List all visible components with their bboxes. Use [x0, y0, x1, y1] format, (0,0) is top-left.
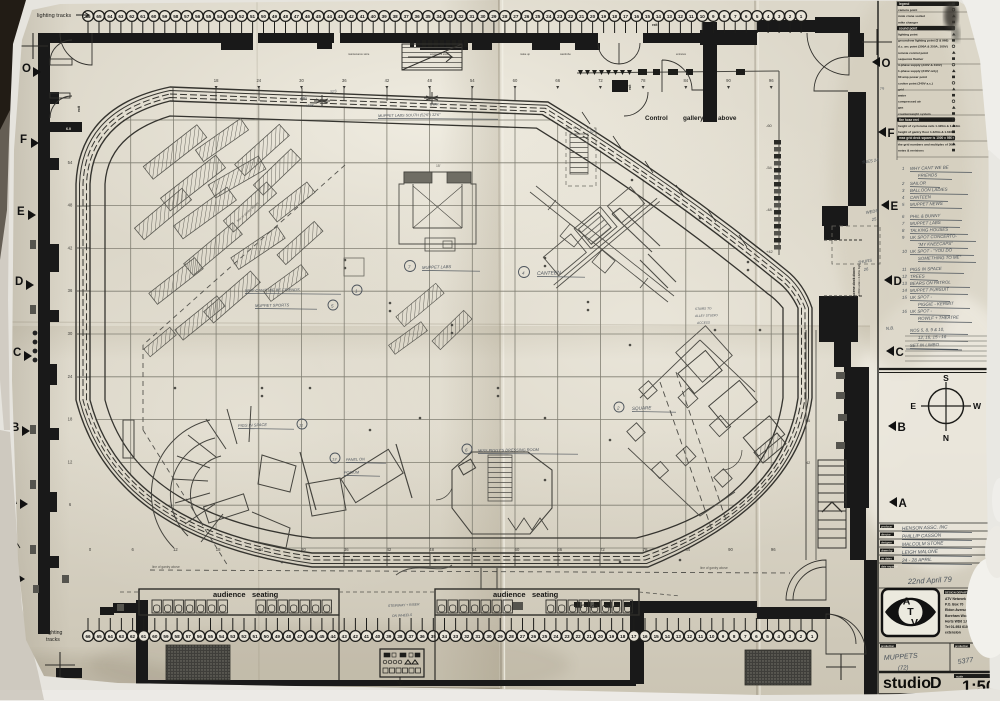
svg-text:63: 63 — [119, 634, 125, 639]
svg-text:42: 42 — [349, 14, 355, 19]
svg-text:STAIRS TO: STAIRS TO — [695, 306, 712, 311]
svg-text:E: E — [17, 206, 25, 218]
svg-text:4.350m wide x 4.420m high: 4.350m wide x 4.420m high — [857, 264, 861, 296]
svg-text:O: O — [22, 63, 31, 75]
svg-text:40: 40 — [371, 14, 377, 19]
svg-text:27: 27 — [520, 634, 526, 639]
svg-text:18: 18 — [620, 634, 626, 639]
svg-text:ALLEY STUDIO: ALLEY STUDIO — [694, 313, 718, 318]
svg-text:24: 24 — [546, 14, 552, 19]
svg-text:UK SPOT -: UK SPOT - — [910, 294, 933, 300]
svg-text:37: 37 — [404, 14, 410, 19]
svg-text:49: 49 — [275, 634, 281, 639]
svg-text:N: N — [943, 433, 949, 443]
svg-text:P.O. Box 70: P.O. Box 70 — [945, 603, 964, 607]
svg-text:A: A — [899, 498, 907, 510]
svg-text:56: 56 — [195, 14, 201, 19]
svg-text:29: 29 — [498, 634, 504, 639]
svg-text:29: 29 — [491, 14, 497, 19]
svg-text:7: 7 — [734, 14, 737, 19]
svg-text:height of cyclorama rails 1.4: height of cyclorama rails 1.420m & 1.610… — [898, 124, 960, 128]
svg-text:13: 13 — [667, 14, 673, 19]
svg-text:48: 48 — [283, 14, 289, 19]
svg-text:33: 33 — [453, 634, 459, 639]
svg-text:20: 20 — [590, 14, 596, 19]
svg-text:28: 28 — [502, 14, 508, 19]
svg-text:D: D — [894, 276, 902, 288]
svg-text:Eldon Avenue: Eldon Avenue — [945, 608, 967, 612]
svg-text:54: 54 — [217, 14, 223, 19]
svg-text:36: 36 — [806, 419, 810, 423]
svg-text:26: 26 — [531, 634, 537, 639]
svg-text:exit: exit — [652, 23, 658, 27]
svg-text:mole crane socket: mole crane socket — [898, 14, 925, 18]
svg-text:D: D — [15, 276, 23, 288]
svg-text:39: 39 — [386, 634, 392, 639]
svg-text:1: 1 — [811, 634, 814, 639]
svg-text:53: 53 — [230, 634, 236, 639]
svg-text:remote control point: remote control point — [898, 51, 928, 55]
svg-text:54: 54 — [219, 634, 225, 639]
svg-text:34: 34 — [442, 634, 448, 639]
svg-text:32: 32 — [464, 634, 470, 639]
svg-text:23: 23 — [564, 634, 570, 639]
svg-text:fire hose reel: fire hose reel — [899, 118, 919, 122]
svg-text:C: C — [896, 347, 904, 359]
svg-text:96: 96 — [769, 78, 774, 83]
svg-text:d.c. arc point (300A & 250A, 1: d.c. arc point (300A & 250A, 100V) — [898, 45, 948, 49]
svg-text:18: 18 — [68, 417, 73, 422]
svg-text:drawn by: drawn by — [881, 548, 893, 552]
svg-text:14: 14 — [656, 14, 662, 19]
svg-text:director: director — [881, 532, 891, 536]
svg-text:65: 65 — [96, 14, 102, 19]
svg-text:47: 47 — [294, 14, 300, 19]
svg-text:14: 14 — [902, 288, 908, 293]
svg-text:62: 62 — [129, 14, 135, 19]
svg-text:scene dock doors: scene dock doors — [852, 267, 856, 296]
svg-text:6: 6 — [745, 14, 748, 19]
svg-text:6.0: 6.0 — [66, 127, 71, 131]
svg-text:24 - 28 APRIL: 24 - 28 APRIL — [901, 557, 932, 564]
svg-text:60: 60 — [513, 78, 518, 83]
svg-text:PANEL ON: PANEL ON — [346, 457, 365, 462]
svg-text:51: 51 — [253, 634, 259, 639]
svg-text:46: 46 — [308, 634, 314, 639]
svg-text:36: 36 — [342, 78, 347, 83]
svg-text:11: 11 — [698, 634, 703, 639]
svg-text:15': 15' — [436, 164, 441, 168]
svg-text:12: 12 — [687, 634, 693, 639]
svg-text:Herts WD6 1JF: Herts WD6 1JF — [945, 619, 969, 623]
svg-text:30: 30 — [68, 331, 73, 336]
svg-text:49: 49 — [272, 14, 278, 19]
svg-text:53: 53 — [228, 14, 234, 19]
svg-text:9: 9 — [722, 634, 725, 639]
svg-text:E: E — [910, 401, 916, 411]
svg-text:11: 11 — [299, 423, 303, 428]
svg-text:10: 10 — [902, 249, 908, 254]
svg-text:4: 4 — [777, 634, 780, 639]
svg-text:sound point: sound point — [899, 26, 918, 30]
svg-text:14: 14 — [665, 634, 671, 639]
svg-text:30: 30 — [299, 78, 304, 83]
svg-text:PIGS IN SPACE: PIGS IN SPACE — [238, 422, 268, 428]
svg-text:18: 18 — [612, 14, 618, 19]
svg-text:12: 12 — [68, 459, 73, 464]
svg-text:55: 55 — [206, 14, 212, 19]
svg-text:line of gantry above: line of gantry above — [700, 566, 728, 570]
svg-text:39: 39 — [382, 14, 388, 19]
svg-text:24: 24 — [258, 547, 263, 552]
svg-text:28: 28 — [509, 634, 515, 639]
svg-text:35: 35 — [426, 14, 432, 19]
svg-text:line of gantry above: line of gantry above — [152, 565, 180, 569]
svg-text:38: 38 — [397, 634, 403, 639]
svg-text:26: 26 — [524, 14, 530, 19]
svg-text:48: 48 — [68, 203, 73, 208]
svg-text:2: 2 — [800, 634, 803, 639]
svg-text:12, 16, 15 - 16: 12, 16, 15 - 16 — [918, 334, 947, 340]
svg-text:30: 30 — [486, 634, 492, 639]
svg-text:notes & revisions: notes & revisions — [898, 148, 924, 152]
svg-text:producer: producer — [881, 524, 892, 528]
svg-text:the grid numbers and multiples: the grid numbers and multiples of 300 — [898, 142, 954, 146]
svg-text:1: 1 — [800, 14, 803, 19]
svg-text:65: 65 — [97, 634, 103, 639]
svg-text:66: 66 — [557, 547, 562, 552]
svg-text:E: E — [891, 201, 899, 213]
svg-text:F: F — [20, 134, 27, 146]
svg-text:43: 43 — [342, 634, 348, 639]
svg-text:audience: audience — [213, 590, 246, 599]
svg-text:78: 78 — [643, 547, 648, 552]
svg-text:48: 48 — [429, 547, 434, 552]
svg-text:+42: +42 — [766, 249, 774, 254]
svg-text:60: 60 — [151, 14, 157, 19]
svg-text:44: 44 — [327, 14, 333, 19]
svg-text:58: 58 — [173, 14, 179, 19]
svg-text:gallery: gallery — [683, 115, 704, 122]
svg-text:studio: studio — [883, 675, 931, 692]
svg-text:19: 19 — [609, 634, 615, 639]
svg-text:30: 30 — [480, 14, 486, 19]
svg-text:18: 18 — [214, 78, 219, 83]
svg-text:-60: -60 — [766, 123, 773, 128]
svg-text:PODIUM: PODIUM — [344, 470, 360, 475]
svg-text:3: 3 — [789, 634, 792, 639]
svg-text:15: 15 — [645, 14, 651, 19]
svg-text:Control: Control — [645, 115, 668, 122]
svg-text:45: 45 — [316, 14, 322, 19]
svg-text:32: 32 — [458, 14, 464, 19]
svg-text:15: 15 — [902, 295, 908, 300]
svg-text:sequence flasher: sequence flasher — [898, 57, 924, 61]
svg-text:7'6: 7'6 — [880, 86, 885, 91]
svg-text:production: production — [881, 645, 895, 648]
svg-text:production: production — [955, 645, 969, 648]
svg-text:20: 20 — [598, 634, 604, 639]
svg-text:2: 2 — [789, 14, 792, 19]
svg-text:above: above — [718, 115, 737, 122]
svg-text:16: 16 — [902, 309, 908, 314]
svg-text:61: 61 — [140, 14, 146, 19]
svg-text:-54: -54 — [766, 165, 773, 170]
svg-text:13: 13 — [332, 457, 337, 462]
svg-text:CANTEEN: CANTEEN — [537, 270, 561, 277]
svg-text:17: 17 — [623, 14, 629, 19]
svg-text:lighting tracks: lighting tracks — [37, 13, 71, 19]
svg-text:54: 54 — [470, 78, 475, 83]
svg-text:24: 24 — [553, 634, 559, 639]
svg-text:78: 78 — [641, 78, 646, 83]
svg-text:61: 61 — [141, 634, 147, 639]
svg-text:8: 8 — [733, 634, 736, 639]
svg-text:90: 90 — [728, 547, 733, 552]
svg-text:lighting: lighting — [46, 630, 63, 636]
svg-text:seating: seating — [532, 590, 559, 599]
svg-text:18: 18 — [216, 547, 221, 552]
svg-text:UK SPOT -: UK SPOT - — [910, 308, 933, 314]
svg-text:O: O — [882, 58, 891, 70]
svg-text:4: 4 — [767, 14, 770, 19]
svg-text:57: 57 — [184, 14, 190, 19]
svg-text:42: 42 — [385, 78, 390, 83]
svg-text:41: 41 — [364, 634, 370, 639]
svg-text:13: 13 — [902, 281, 908, 286]
svg-text:make up: make up — [520, 52, 531, 56]
svg-text:lighting point: lighting point — [898, 33, 918, 37]
svg-text:10: 10 — [709, 634, 715, 639]
svg-text:seating: seating — [252, 590, 279, 599]
svg-text:36: 36 — [68, 288, 73, 293]
svg-text:42: 42 — [68, 245, 73, 250]
svg-text:tracks: tracks — [46, 637, 60, 643]
svg-text:64: 64 — [108, 634, 114, 639]
svg-text:55: 55 — [208, 634, 214, 639]
svg-text:36: 36 — [344, 547, 349, 552]
svg-text:3-phase supply (230V & 440V): 3-phase supply (230V & 440V) — [898, 63, 942, 67]
svg-text:max grid deck square is 1000 x: max grid deck square is 1000 x 9500 — [899, 136, 954, 140]
svg-text:MUPPET SPORTS: MUPPET SPORTS — [255, 302, 290, 308]
svg-text:84: 84 — [683, 78, 688, 83]
svg-text:84: 84 — [685, 547, 690, 552]
svg-text:water: water — [897, 94, 907, 98]
svg-text:48: 48 — [286, 634, 292, 639]
svg-text:3: 3 — [778, 14, 781, 19]
svg-text:11: 11 — [689, 14, 694, 19]
svg-text:30: 30 — [301, 547, 306, 552]
svg-text:S: S — [943, 373, 949, 383]
svg-text:19: 19 — [601, 14, 607, 19]
svg-text:C: C — [13, 347, 21, 359]
svg-text:grid: grid — [898, 87, 904, 91]
svg-text:45: 45 — [319, 634, 325, 639]
svg-text:60 amp power point: 60 amp power point — [898, 75, 927, 79]
svg-text:F: F — [888, 128, 895, 140]
svg-text:34: 34 — [436, 14, 442, 19]
svg-text:22: 22 — [568, 14, 574, 19]
svg-text:40: 40 — [375, 634, 381, 639]
svg-text:1-phase supply (240V only): 1-phase supply (240V only) — [898, 69, 938, 73]
svg-text:58: 58 — [175, 634, 181, 639]
svg-text:SET IN LIMBO: SET IN LIMBO — [910, 342, 940, 348]
svg-text:exit: exit — [628, 84, 632, 90]
svg-text:24: 24 — [68, 374, 73, 379]
svg-text:B: B — [898, 422, 906, 434]
svg-text:6: 6 — [755, 634, 758, 639]
svg-text:7: 7 — [744, 634, 747, 639]
svg-text:27: 27 — [513, 14, 519, 19]
svg-text:57: 57 — [186, 634, 192, 639]
svg-text:21: 21 — [587, 634, 593, 639]
svg-text:46: 46 — [305, 14, 311, 19]
svg-text:5: 5 — [756, 14, 759, 19]
svg-text:exit: exit — [77, 105, 81, 112]
svg-text:12: 12 — [678, 14, 684, 19]
svg-text:56: 56 — [197, 634, 203, 639]
svg-text:50: 50 — [264, 634, 270, 639]
svg-text:date required: date required — [881, 564, 898, 568]
svg-text:50: 50 — [261, 14, 267, 19]
svg-text:compressed air: compressed air — [898, 100, 922, 104]
svg-text:W: W — [973, 401, 982, 411]
svg-text:camera point: camera point — [898, 8, 917, 12]
svg-text:9: 9 — [712, 14, 715, 19]
svg-text:TREES: TREES — [910, 273, 925, 279]
svg-text:16: 16 — [642, 634, 648, 639]
svg-text:25: 25 — [535, 14, 541, 19]
svg-text:42: 42 — [806, 461, 810, 465]
svg-text:60: 60 — [152, 634, 158, 639]
svg-text:-48: -48 — [766, 207, 773, 212]
svg-text:CANTEEN: CANTEEN — [910, 194, 932, 200]
svg-text:36: 36 — [420, 634, 426, 639]
svg-text:66: 66 — [85, 634, 91, 639]
svg-text:31: 31 — [475, 634, 481, 639]
svg-text:52: 52 — [241, 634, 247, 639]
svg-text:cooker point (240V a.c.): cooker point (240V a.c.) — [898, 81, 933, 85]
svg-text:52: 52 — [239, 14, 245, 19]
svg-text:43: 43 — [338, 14, 344, 19]
svg-text:SQUARE: SQUARE — [632, 405, 652, 411]
svg-text:96: 96 — [771, 547, 776, 552]
svg-text:equipment store: equipment store — [430, 52, 449, 56]
svg-text:24: 24 — [256, 78, 261, 83]
svg-text:54: 54 — [472, 547, 477, 552]
svg-text:16: 16 — [634, 14, 640, 19]
svg-text:66: 66 — [555, 78, 560, 83]
svg-text:51: 51 — [250, 14, 256, 19]
svg-text:WHY CAN'T WE BE FRIENDS: WHY CAN'T WE BE FRIENDS — [245, 287, 300, 293]
svg-text:13: 13 — [676, 634, 682, 639]
svg-text:legend: legend — [899, 2, 909, 6]
svg-text:60: 60 — [515, 547, 520, 552]
svg-text:22: 22 — [576, 634, 582, 639]
svg-text:Tel 01-953 6100: Tel 01-953 6100 — [945, 625, 970, 629]
svg-text:12: 12 — [902, 274, 908, 279]
svg-text:11: 11 — [902, 267, 907, 272]
svg-text:ACCESS: ACCESS — [696, 321, 711, 326]
svg-text:25: 25 — [542, 634, 548, 639]
svg-text:8: 8 — [723, 14, 726, 19]
svg-text:36: 36 — [415, 14, 421, 19]
svg-text:63: 63 — [118, 14, 124, 19]
svg-text:72: 72 — [598, 78, 603, 83]
svg-text:21: 21 — [579, 14, 585, 19]
svg-text:72: 72 — [600, 547, 605, 552]
svg-text:height of gantry floor 1.420m: height of gantry floor 1.420m & 1.610m — [898, 130, 955, 134]
svg-text:90: 90 — [726, 78, 731, 83]
svg-text:33: 33 — [447, 14, 453, 19]
svg-text:15: 15 — [654, 634, 660, 639]
svg-text:wardrobe: wardrobe — [560, 52, 571, 56]
svg-text:audience: audience — [493, 590, 526, 599]
svg-text:FRIENDS: FRIENDS — [918, 172, 938, 178]
svg-text:17: 17 — [631, 634, 637, 639]
svg-text:2: 2 — [616, 406, 620, 411]
svg-text:5: 5 — [766, 634, 769, 639]
svg-text:64: 64 — [107, 14, 113, 19]
svg-text:44: 44 — [331, 634, 337, 639]
svg-text:38: 38 — [393, 14, 399, 19]
svg-text:V: V — [911, 617, 918, 629]
svg-text:vtr dates: vtr dates — [881, 556, 892, 560]
svg-text:entrance: entrance — [676, 52, 687, 56]
svg-text:41: 41 — [360, 14, 366, 19]
svg-text:47: 47 — [297, 634, 303, 639]
svg-text:designer: designer — [881, 540, 892, 544]
svg-text:62: 62 — [130, 634, 136, 639]
svg-text:23: 23 — [557, 14, 563, 19]
svg-text:SAILOR: SAILOR — [910, 180, 927, 186]
svg-text:42: 42 — [387, 547, 392, 552]
svg-text:37: 37 — [408, 634, 414, 639]
svg-text:gas: gas — [898, 106, 904, 110]
svg-text:31: 31 — [469, 14, 475, 19]
svg-text:maintenance store: maintenance store — [348, 52, 370, 56]
svg-text:48: 48 — [427, 78, 432, 83]
svg-text:D: D — [930, 675, 942, 692]
svg-text:54: 54 — [68, 160, 73, 165]
svg-text:59: 59 — [163, 634, 169, 639]
svg-text:mike changer: mike changer — [898, 20, 919, 24]
svg-text:N.B.: N.B. — [886, 325, 895, 331]
svg-text:MUPPET LABS: MUPPET LABS — [422, 264, 452, 270]
svg-text:59: 59 — [162, 14, 168, 19]
svg-text:42: 42 — [353, 634, 359, 639]
svg-text:10: 10 — [700, 14, 706, 19]
svg-text:extension: extension — [945, 631, 961, 635]
